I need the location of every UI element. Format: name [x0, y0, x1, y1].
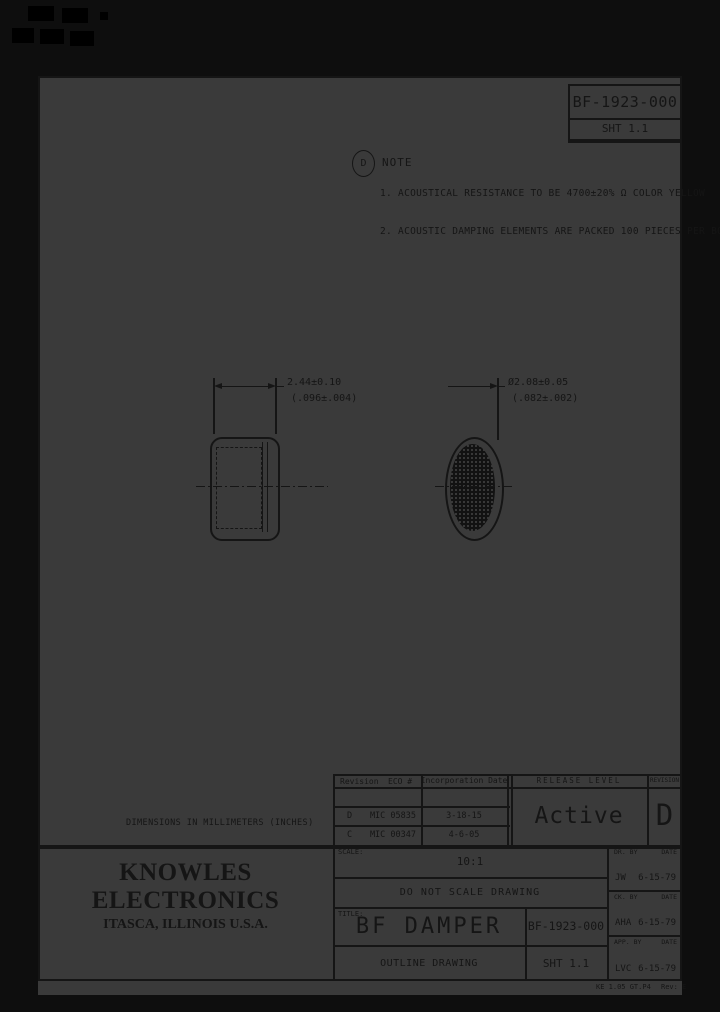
signoff-role: CK. BY	[614, 893, 637, 901]
width-dimension-in: (.096±.004)	[291, 393, 357, 404]
revision-flag: D	[352, 150, 375, 177]
eco-date: 3-18-15	[421, 806, 507, 825]
scan-mark	[12, 28, 34, 43]
signoff-drawn: DR. BY DATE JW 6-15-79	[609, 845, 682, 890]
scale-value: 10:1	[333, 845, 607, 877]
revision-value: D	[647, 787, 682, 843]
width-dimension-mm: 2.44±0.10	[287, 377, 341, 388]
signoff-date-label: DATE	[661, 848, 677, 856]
signoff-approved: APP. BY DATE LVC 6-15-79	[609, 935, 682, 981]
diameter-dimension-in: (.082±.002)	[512, 393, 578, 404]
dimension-leader	[499, 386, 505, 387]
eco-date: 4-6-05	[421, 825, 507, 844]
scan-mark	[70, 31, 94, 46]
units-note: DIMENSIONS IN MILLIMETERS (INCHES)	[126, 818, 314, 828]
col-revision: Revision	[340, 777, 379, 786]
drawing-paper: BF-1923-000 SHT 1.1 D NOTE 1. ACOUSTICAL…	[38, 76, 682, 995]
scan-mark	[62, 8, 88, 23]
side-view-centerline	[196, 486, 328, 487]
revision-row: C MIC 00347	[333, 825, 421, 844]
signoff-role: APP. BY	[614, 938, 641, 946]
drawing-title: BF DAMPER	[333, 907, 525, 945]
side-view-hidden-lines	[216, 447, 262, 529]
drawing-number: BF-1923-000	[570, 86, 680, 120]
dimension-leader	[276, 386, 284, 387]
diameter-dimension-mm: Ø2.08±0.05	[508, 377, 568, 388]
signoff-initials: JW	[615, 873, 626, 883]
signoff-date: 6-15-79	[638, 873, 676, 883]
signoff-date-label: DATE	[661, 893, 677, 901]
rev-letter: C	[347, 830, 352, 840]
footer-rev-note: Rev: E	[661, 983, 686, 991]
revision-row: D MIC 05835	[333, 806, 421, 825]
col-eco: ECO #	[388, 777, 412, 786]
drawing-number-box: BF-1923-000 SHT 1.1	[568, 84, 682, 143]
col-incorporation-date: Incorporation Date	[421, 776, 507, 785]
note-2: 2. ACOUSTIC DAMPING ELEMENTS ARE PACKED …	[380, 226, 720, 237]
scan-mark	[40, 29, 64, 44]
dimension-line	[448, 386, 492, 387]
company-name: KNOWLES ELECTRONICS	[38, 859, 333, 915]
col-rev: REVISION	[647, 777, 682, 784]
scan-mark	[100, 12, 108, 20]
eco-number: MIC 00347	[370, 830, 416, 840]
col-release-level: RELEASE LEVEL	[511, 776, 647, 785]
damper-mesh	[450, 444, 495, 531]
eco-number: MIC 05835	[370, 811, 416, 821]
dimension-line	[218, 386, 272, 387]
company-block: KNOWLES ELECTRONICS ITASCA, ILLINOIS U.S…	[38, 845, 333, 981]
release-level-value: Active	[511, 789, 647, 843]
dimension-arrow	[490, 383, 498, 389]
drawing-subtitle: OUTLINE DRAWING	[333, 945, 525, 981]
scan-mark	[28, 6, 54, 21]
title-drawing-number: BF-1923-000	[525, 907, 607, 945]
no-scale-note: DO NOT SCALE DRAWING	[333, 877, 607, 907]
signoff-date-label: DATE	[661, 938, 677, 946]
note-1: 1. ACOUSTICAL RESISTANCE TO BE 4700±20% …	[380, 188, 705, 199]
scanned-drawing-sheet: BF-1923-000 SHT 1.1 D NOTE 1. ACOUSTICAL…	[0, 0, 720, 1012]
signoff-date: 6-15-79	[638, 918, 676, 928]
signoff-date: 6-15-79	[638, 964, 676, 974]
front-view-centerline	[435, 486, 512, 487]
sheet-number: SHT 1.1	[570, 120, 680, 137]
form-reference: KE 1.05 GT.P4	[596, 983, 651, 991]
title-sheet-number: SHT 1.1	[525, 945, 607, 981]
signoff-role: DR. BY	[614, 848, 637, 856]
signoff-initials: LVC	[615, 964, 631, 974]
signoff-checked: CK. BY DATE AHA 6-15-79	[609, 890, 682, 935]
rev-letter: D	[347, 811, 352, 821]
signoff-initials: AHA	[615, 918, 631, 928]
note-heading: NOTE	[382, 156, 413, 169]
company-location: ITASCA, ILLINOIS U.S.A.	[103, 917, 268, 933]
